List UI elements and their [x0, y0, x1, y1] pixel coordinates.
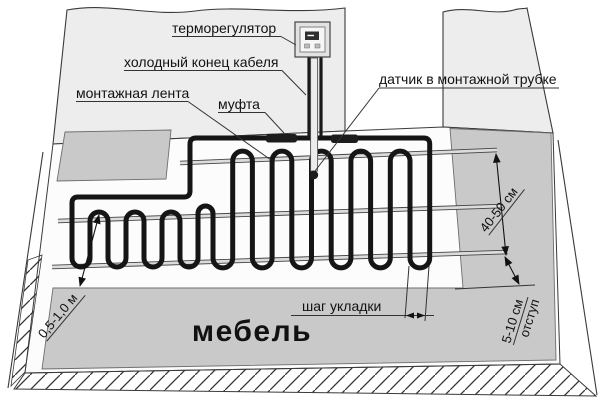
label-mounting-tape: монтажная лента — [76, 85, 189, 101]
right-wall-outer-edge — [558, 140, 597, 395]
label-sensor: датчик в монтажной трубке — [379, 71, 557, 87]
label-coupling: муфта — [218, 96, 260, 112]
label-furniture: мебель — [192, 315, 312, 348]
appliance-zone — [57, 130, 171, 181]
label-thermostat: терморегулятор — [172, 20, 276, 36]
sensor-tube-group — [310, 58, 318, 179]
sensor-tube — [311, 58, 318, 171]
thermostat-button-left — [305, 44, 310, 48]
installation-diagram-screen: терморегулятор холодный конец кабеля мон… — [0, 0, 600, 400]
sensor-tip — [310, 171, 318, 179]
label-laying-step: шаг укладки — [302, 298, 381, 314]
label-cold-end: холодный конец кабеля — [124, 54, 278, 70]
underfloor-heating-diagram: терморегулятор холодный конец кабеля мон… — [0, 0, 600, 400]
floor-group — [11, 127, 596, 396]
coupling-left — [266, 134, 297, 143]
coupling-right — [331, 135, 358, 144]
thermostat-button-right — [315, 44, 320, 48]
thermostat-box — [295, 22, 330, 57]
